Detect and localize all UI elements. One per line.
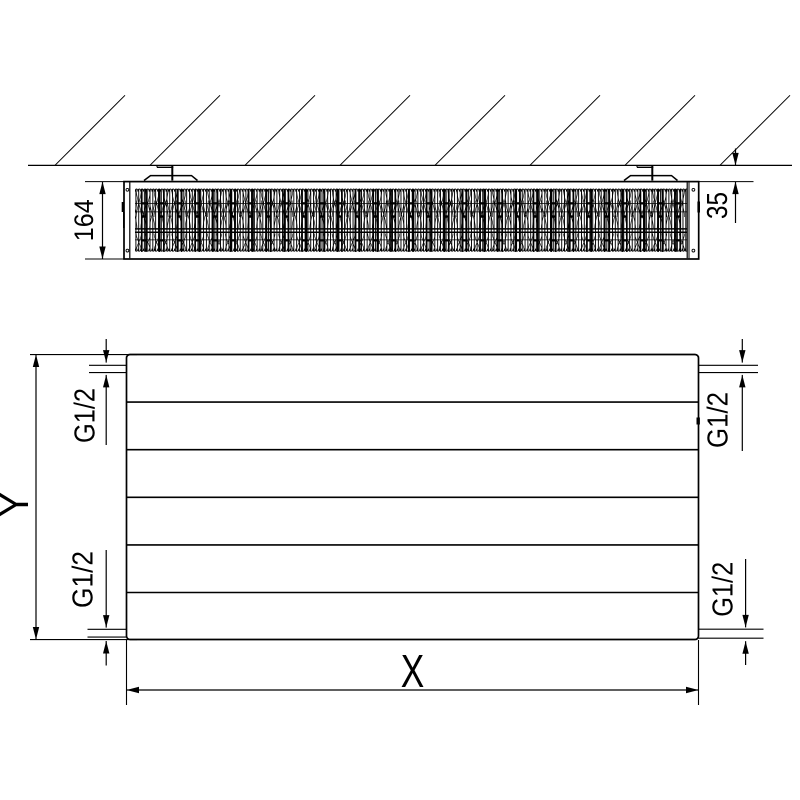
svg-text:X: X	[401, 645, 425, 697]
svg-text:35: 35	[702, 192, 734, 219]
svg-text:G1/2: G1/2	[70, 388, 102, 443]
svg-text:G1/2: G1/2	[707, 562, 739, 617]
svg-text:Y: Y	[0, 492, 37, 518]
svg-text:G1/2: G1/2	[703, 392, 735, 448]
svg-text:G1/2: G1/2	[68, 551, 100, 608]
svg-text:164: 164	[69, 199, 99, 241]
